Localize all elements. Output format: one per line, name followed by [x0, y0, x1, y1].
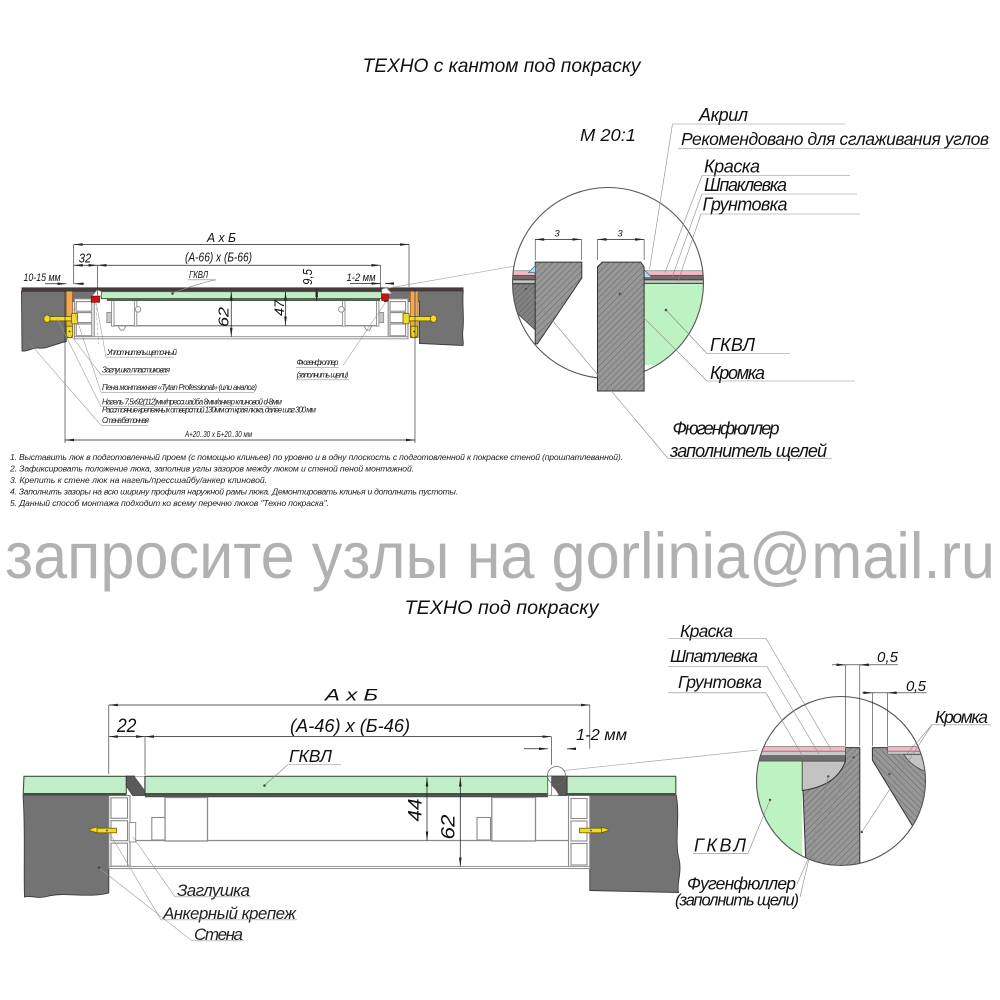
- svg-text:1-2 мм: 1-2 мм: [576, 727, 627, 744]
- svg-text:М 20:1: М 20:1: [580, 125, 636, 145]
- svg-text:(заполнить щели): (заполнить щели): [675, 892, 799, 910]
- svg-text:Стена бетонная: Стена бетонная: [102, 416, 150, 425]
- svg-text:(А-46) х (Б-46): (А-46) х (Б-46): [290, 716, 410, 736]
- svg-text:ГКВЛ: ГКВЛ: [710, 335, 756, 355]
- svg-text:А+20..30 х Б+20..30 мм: А+20..30 х Б+20..30 мм: [184, 430, 252, 439]
- svg-text:1. Выставить люк в подготовлен: 1. Выставить люк в подготовленный проем …: [10, 452, 623, 462]
- svg-text:2. Зафиксировать положение люк: 2. Зафиксировать положение люка, заполни…: [9, 464, 414, 474]
- svg-text:ГКВЛ: ГКВЛ: [694, 836, 747, 856]
- svg-text:Анкерный крепеж: Анкерный крепеж: [162, 904, 297, 923]
- svg-text:Кромка: Кромка: [710, 363, 765, 383]
- svg-text:ГКВЛ: ГКВЛ: [189, 269, 209, 281]
- svg-text:5. Данный способ монтажа подхо: 5. Данный способ монтажа подходит ко все…: [10, 498, 329, 508]
- svg-text:Шпатлевка: Шпатлевка: [670, 646, 758, 666]
- svg-text:3: 3: [554, 229, 560, 240]
- svg-text:22: 22: [116, 716, 137, 737]
- svg-text:3. Крепить к стене люк на наге: 3. Крепить к стене люк на нагель/прессша…: [10, 475, 267, 485]
- svg-text:запросите узлы на gorlinia@mai: запросите узлы на gorlinia@mail.ru: [5, 519, 995, 592]
- svg-text:0,5: 0,5: [877, 649, 899, 666]
- svg-text:(А-66) х (Б-66): (А-66) х (Б-66): [185, 251, 252, 265]
- svg-text:заполнитель щелей: заполнитель щелей: [669, 441, 827, 461]
- svg-text:Грунтовка: Грунтовка: [678, 672, 762, 692]
- svg-text:47: 47: [271, 299, 287, 316]
- svg-text:Уплотнитель щеточный: Уплотнитель щеточный: [106, 348, 178, 357]
- svg-text:3: 3: [617, 229, 623, 240]
- svg-text:ГКВЛ: ГКВЛ: [289, 746, 333, 766]
- svg-text:32: 32: [79, 252, 92, 266]
- svg-text:Краска: Краска: [704, 157, 760, 177]
- svg-text:62: 62: [439, 814, 460, 840]
- svg-text:Заглушка пластиковая: Заглушка пластиковая: [102, 366, 171, 375]
- svg-text:Фюгенфюллер: Фюгенфюллер: [297, 358, 340, 367]
- svg-text:62: 62: [216, 306, 233, 327]
- svg-text:Стена: Стена: [194, 925, 243, 944]
- svg-text:А х Б: А х Б: [324, 686, 378, 705]
- svg-text:Рекомендовано для сглаживания: Рекомендовано для сглаживания углов: [681, 129, 989, 149]
- svg-text:Фугенфюллер: Фугенфюллер: [687, 874, 796, 894]
- svg-text:Фюгенфюллер: Фюгенфюллер: [673, 419, 780, 439]
- svg-text:Грунтовка: Грунтовка: [703, 195, 788, 215]
- svg-text:0,5: 0,5: [906, 678, 927, 695]
- svg-text:Кромка: Кромка: [935, 707, 988, 727]
- svg-text:ТЕХНО под покраску: ТЕХНО под покраску: [405, 597, 600, 619]
- svg-text:Пена монтажная «Tytan Professi: Пена монтажная «Tytan Professional» (или…: [102, 383, 257, 392]
- svg-text:(заполнить щели): (заполнить щели): [297, 371, 349, 380]
- svg-text:10-15 мм: 10-15 мм: [24, 272, 61, 284]
- svg-text:Заглушка: Заглушка: [177, 881, 250, 900]
- svg-text:4. Заполнить зазоры на всю шир: 4. Заполнить зазоры на всю ширину профил…: [10, 487, 458, 497]
- svg-text:А х Б: А х Б: [206, 230, 236, 245]
- svg-text:9,5: 9,5: [300, 268, 315, 285]
- svg-text:1-2 мм: 1-2 мм: [347, 272, 377, 284]
- svg-text:ТЕХНО с кантом под покраску: ТЕХНО с кантом под покраску: [363, 55, 642, 77]
- svg-text:Акрил: Акрил: [698, 105, 748, 125]
- svg-text:44: 44: [406, 799, 427, 822]
- svg-text:Шпаклевка: Шпаклевка: [704, 175, 787, 195]
- svg-text:Краска: Краска: [680, 621, 733, 641]
